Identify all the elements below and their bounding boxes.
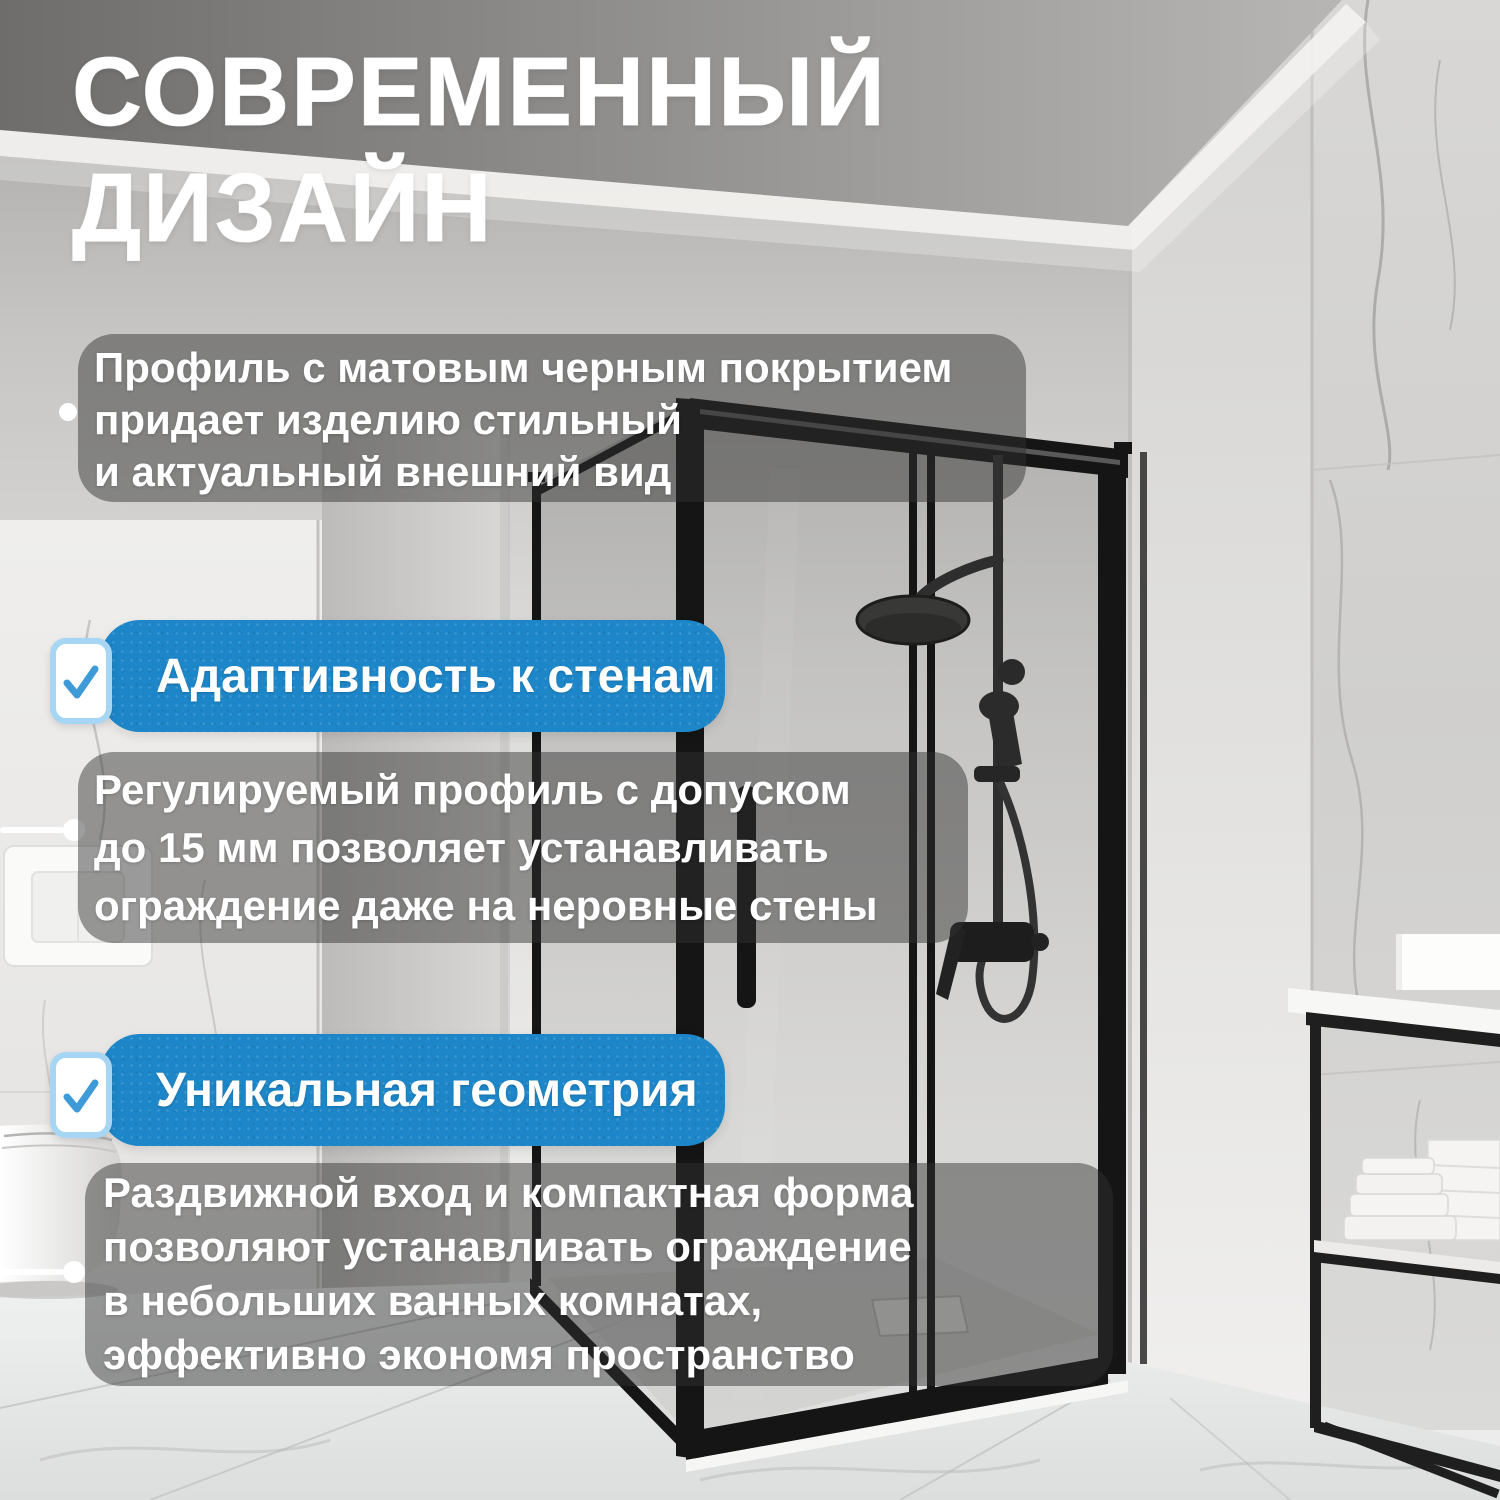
feature-geometry-panel: Раздвижной вход и компактная форма позво… (85, 1163, 1113, 1386)
feature-intro-line: придает изделию стильный (94, 394, 1026, 446)
feature-adaptivity-line: Регулируемый профиль с допуском (94, 761, 968, 819)
feature-adaptivity-line: ограждение даже на неровные стены (94, 877, 968, 935)
badge-geometry: Уникальная геометрия (100, 1034, 725, 1146)
feature-geometry-line: в небольших ванных комнатах, (103, 1274, 1113, 1328)
bullet-marker (59, 403, 77, 421)
connector-line (0, 1269, 64, 1275)
check-icon (61, 1073, 101, 1117)
product-infographic: СОВРЕМЕННЫЙ ДИЗАЙН Профиль с матовым чер… (0, 0, 1500, 1500)
feature-intro-panel: Профиль с матовым черным покрытием прида… (78, 334, 1026, 502)
slider-holder (974, 766, 1020, 782)
connector-dot (63, 1261, 85, 1283)
checkbox-geometry (50, 1052, 112, 1138)
connector-line (0, 827, 64, 833)
badge-adaptivity: Адаптивность к стенам (100, 620, 725, 732)
check-icon (61, 659, 101, 703)
badge-adaptivity-label: Адаптивность к стенам (156, 649, 716, 704)
title-line-1: СОВРЕМЕННЫЙ (72, 34, 887, 150)
feature-geometry-line: эффективно экономя пространство (103, 1328, 1113, 1382)
feature-intro-line: и актуальный внешний вид (94, 446, 1026, 498)
checkbox-adaptivity (50, 638, 112, 724)
feature-adaptivity-panel: Регулируемый профиль с допуском до 15 мм… (78, 752, 968, 943)
feature-intro-line: Профиль с матовым черным покрытием (94, 342, 1026, 394)
wall-profile (1140, 452, 1147, 1364)
badge-geometry-label: Уникальная геометрия (156, 1063, 698, 1118)
basin (1396, 934, 1500, 990)
title-line-2: ДИЗАЙН (72, 150, 887, 266)
feature-adaptivity-line: до 15 мм позволяет устанавливать (94, 819, 968, 877)
feature-geometry-line: Раздвижной вход и компактная форма (103, 1166, 1113, 1220)
wall-bracket (999, 659, 1025, 685)
page-title: СОВРЕМЕННЫЙ ДИЗАЙН (72, 34, 887, 266)
feature-geometry-line: позволяют устанавливать ограждение (103, 1220, 1113, 1274)
